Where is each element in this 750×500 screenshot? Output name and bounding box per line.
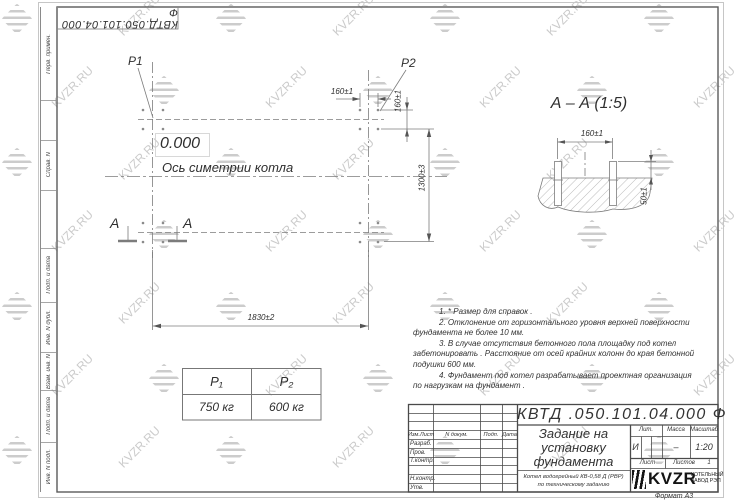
sign-row-prov: Пров. [410,450,426,456]
drawing-title-line-3: фундамента [517,454,630,469]
drawing-linework [0,0,750,500]
format-label: Формат А3 [630,493,718,500]
plan-bolt-holes [142,109,380,244]
col-header-izm-list: Изм.Лист [408,432,433,438]
section-linework [538,138,656,212]
col-header-podp: Подп. [480,432,502,438]
sheets-value: 1 [700,460,718,466]
margin-label: Справ. N [46,152,52,177]
mass-label: Масса [662,427,690,433]
dim-bolt-spacing-x: 160±1 [325,87,359,96]
margin-box-inv-dubl: Инв. N дубл. [40,302,57,352]
doc-number: КВТД .050.101.04.000 Ф [517,406,718,424]
sign-row-utv: Утв. [410,485,424,491]
margin-box-podp-data-1: Подп. и дата [40,248,57,302]
note-line: 1. * Размер для справок . [413,307,715,318]
dim-bolt-spacing-y: 160±1 [394,90,403,112]
kvzr-logo-caption: КОТЕЛЬНЫЙ ЗАВОД РЭП [691,473,724,485]
dim-foundation-height: 1300±3 [418,165,427,192]
margin-label: Подп. и дата [46,256,52,294]
dim-foundation-width: 1830±2 [232,313,290,322]
load-table-header-p1: P₁ [182,374,251,389]
technical-notes: 1. * Размер для справок . 2. Отклонение … [413,307,715,392]
margin-box-inv-podl: Инв. N подл. [40,442,57,492]
kvzr-logo-text: KVZR [648,469,696,489]
margin-box-podp-data-2: Подп. и дата [40,390,57,442]
note-line: 4. Фундамент под котел разрабатывает про… [413,371,715,382]
drawing-sheet: KVZR.RUKVZR.RUKVZR.RUKVZR.RUKVZR.RUKVZR.… [0,0,750,500]
sign-row-razrab: Разраб. [410,441,432,447]
margin-label: Инв. N подл. [46,449,52,484]
section-mark-letter-right: А [183,215,192,231]
dim-bolt-protrusion: 50±1 [640,187,649,205]
margin-label: Инв. N дубл. [46,310,52,345]
lit-value: И [630,442,641,452]
margin-box-perv-primen: Перв. примен. [40,7,57,100]
kvzr-logo-icon [632,470,646,489]
col-header-n-dokum: N докум. [433,432,480,438]
dim-section-bolt-spacing: 160±1 [564,129,620,138]
drawing-title-line-2: установку [517,440,630,455]
scale-value: 1:20 [690,442,718,452]
note-line: по нагрузкам на фундамент . [413,381,715,392]
drawing-title-line-1: Задание на [517,426,630,441]
note-line: 3. В случае отсутствия бетонного пола пл… [413,339,715,350]
margin-label: Подп. и дата [46,397,52,435]
load-table-value-p2: 600 кг [252,400,321,414]
note-line: забетонировать . Расстояние от осей край… [413,349,715,360]
sheet-label: Лист [630,460,665,466]
load-point-p2-label: P2 [401,56,416,70]
product-name-line-2: по техническому заданию [517,482,630,488]
mass-value: – [662,442,690,452]
margin-box-vzam-inv: Взам. инв. N [40,352,57,390]
scale-label: Масштаб [690,427,718,433]
load-table-header-p2: P₂ [252,374,321,389]
top-doc-number: КВТД.050.101.04.000 Ф [57,6,178,30]
margin-label: Перв. примен. [46,34,52,74]
top-doc-number-box: КВТД.050.101.04.000 Ф [57,7,178,29]
boiler-symmetry-axis-label: Ось симетрии котла [162,160,293,175]
sign-row-tkontr: Т.контр. [410,458,434,464]
kvzr-logo-caption-line-2: ЗАВОД РЭП [691,479,724,485]
product-name-line-1: Котел водогрейный КВ-0,58 Д (РВР) [517,474,630,480]
section-mark-letter-left: А [110,215,119,231]
load-table-value-p1: 750 кг [182,400,251,414]
section-view-title: А – А (1:5) [543,95,635,113]
note-line: фундамента не более 10 мм. [413,328,715,339]
sheets-label: Листов [665,460,703,466]
sign-row-nkontr: Н.контр. [410,476,435,482]
margin-box-sprav-n: Справ. N [40,140,57,190]
elevation-mark: 0.000 [160,135,200,153]
lit-label: Лит. [630,427,662,433]
margin-label: Взам. инв. N [46,354,52,389]
note-line: 2. Отклонение от горизонтального уровня … [413,318,715,329]
col-header-data: Дата [502,432,517,438]
note-line: подушки 600 мм. [413,360,715,371]
load-point-p1-label: P1 [128,54,143,68]
